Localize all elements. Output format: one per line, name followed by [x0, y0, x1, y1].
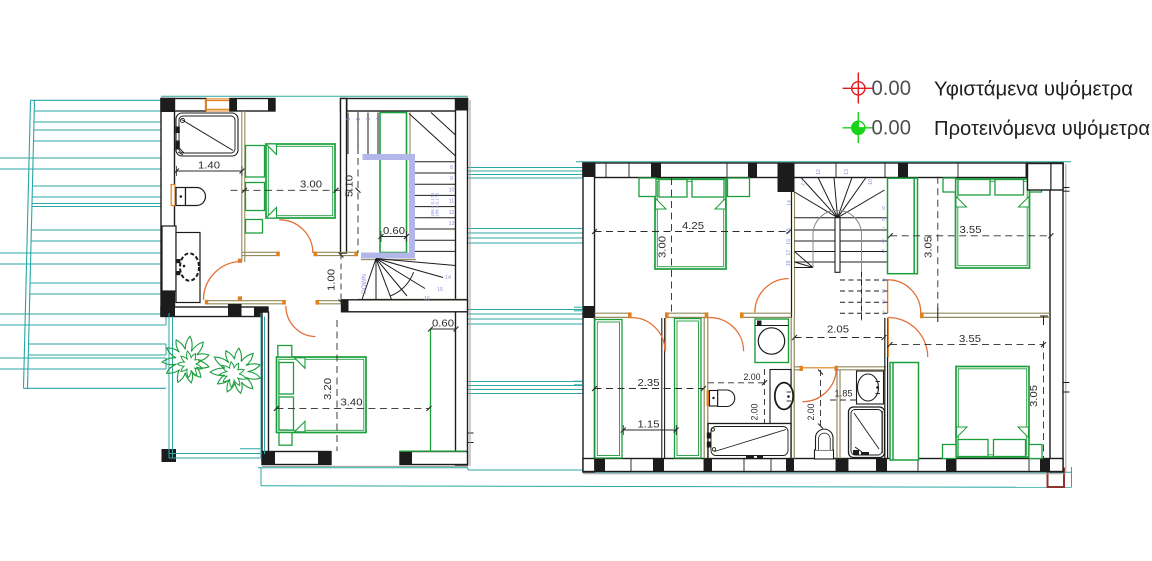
- svg-text:1: 1: [882, 310, 885, 316]
- svg-text:3: 3: [366, 117, 372, 120]
- svg-text:3.20: 3.20: [322, 378, 334, 400]
- svg-text:186 x 0,176: 186 x 0,176: [435, 193, 440, 217]
- svg-text:10: 10: [868, 179, 874, 185]
- svg-text:18: 18: [786, 260, 792, 266]
- svg-text:3.55: 3.55: [959, 333, 981, 345]
- svg-text:14: 14: [445, 275, 451, 281]
- svg-text:3.05: 3.05: [1028, 385, 1040, 407]
- svg-text:2: 2: [356, 117, 362, 120]
- svg-text:2: 2: [882, 300, 885, 306]
- svg-text:0.60: 0.60: [432, 317, 454, 329]
- svg-text:0.00: 0.00: [872, 77, 912, 100]
- svg-text:2.00: 2.00: [806, 404, 817, 421]
- svg-text:Προτεινόμενα υψόμετρα: Προτεινόμενα υψόμετρα: [934, 118, 1150, 140]
- svg-text:3.55: 3.55: [960, 224, 982, 236]
- svg-text:16: 16: [424, 296, 430, 302]
- svg-text:3.40: 3.40: [341, 397, 363, 409]
- svg-text:0.00: 0.00: [872, 117, 912, 140]
- svg-text:1.00: 1.00: [326, 269, 338, 291]
- svg-text:8: 8: [450, 165, 453, 171]
- svg-text:3.05: 3.05: [923, 236, 935, 258]
- svg-text:6: 6: [882, 238, 885, 244]
- svg-text:9: 9: [882, 206, 885, 212]
- svg-text:12: 12: [816, 169, 822, 175]
- svg-text:4.25: 4.25: [682, 220, 704, 232]
- svg-text:5: 5: [882, 249, 885, 255]
- svg-text:2.05: 2.05: [827, 323, 849, 335]
- svg-text:1.40: 1.40: [198, 160, 220, 172]
- svg-text:14: 14: [787, 200, 793, 206]
- svg-text:1: 1: [346, 117, 352, 120]
- svg-text:13: 13: [844, 169, 850, 175]
- svg-text:7: 7: [882, 228, 885, 234]
- svg-text:8: 8: [882, 217, 885, 223]
- svg-text:9: 9: [450, 176, 453, 182]
- svg-text:15: 15: [437, 287, 443, 293]
- svg-text:3.00: 3.00: [300, 179, 322, 191]
- svg-text:10: 10: [449, 187, 455, 193]
- svg-text:13: 13: [449, 221, 455, 227]
- svg-text:2.35: 2.35: [638, 377, 660, 389]
- svg-text:2.00: 2.00: [750, 404, 761, 421]
- svg-text:2.00: 2.00: [744, 372, 761, 383]
- svg-text:16: 16: [786, 239, 792, 245]
- svg-text:3.00: 3.00: [657, 236, 669, 258]
- svg-text:4: 4: [882, 278, 885, 284]
- svg-text:12: 12: [449, 210, 455, 216]
- svg-text:4: 4: [376, 117, 382, 120]
- svg-text:3: 3: [882, 289, 885, 295]
- svg-text:DOWN: DOWN: [361, 274, 368, 294]
- svg-text:17: 17: [786, 250, 792, 256]
- svg-text:5.10: 5.10: [344, 175, 356, 197]
- svg-text:Υφιστάμενα υψόμετρα: Υφιστάμενα υψόμετρα: [934, 79, 1133, 101]
- svg-text:11: 11: [449, 199, 454, 205]
- svg-text:1.15: 1.15: [638, 418, 660, 430]
- svg-text:0.60: 0.60: [383, 225, 405, 237]
- svg-text:1.85: 1.85: [835, 389, 853, 400]
